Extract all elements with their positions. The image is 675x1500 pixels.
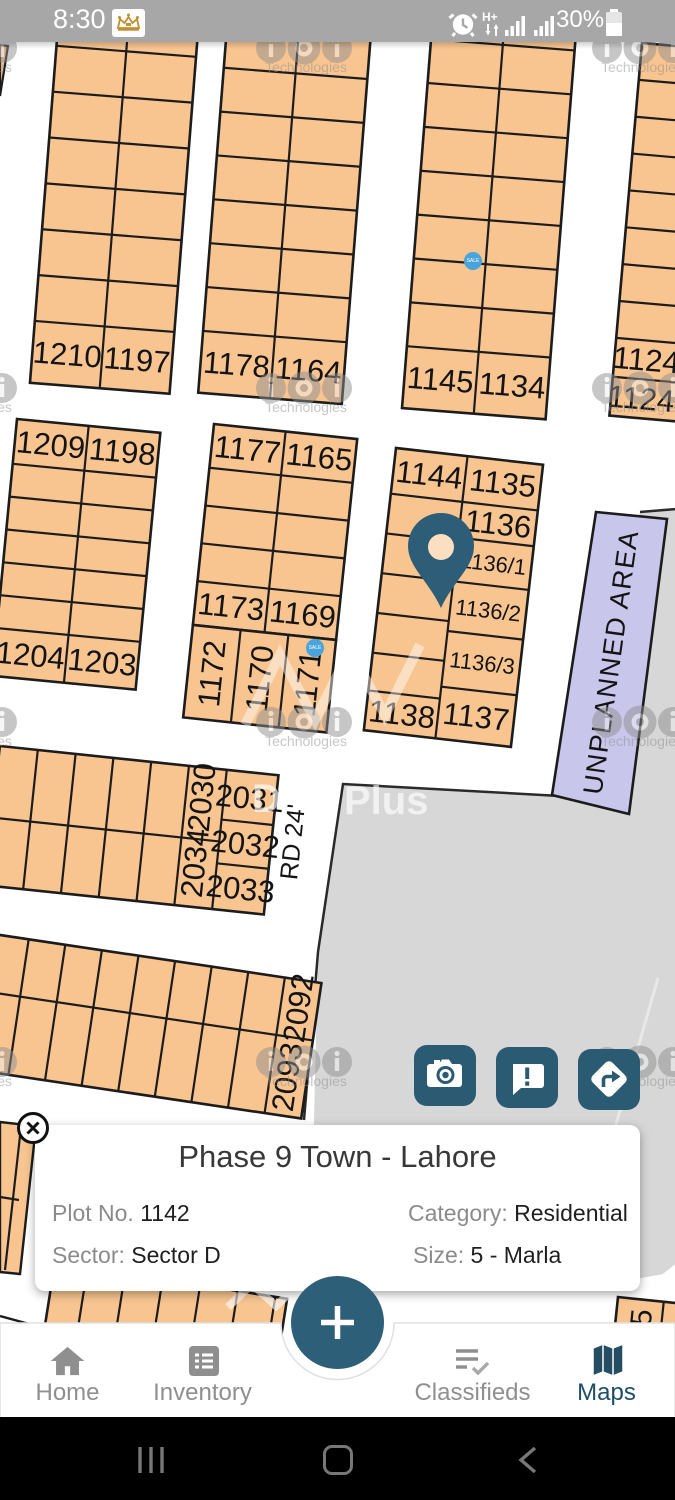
svg-text:Technologies: Technologies [265,733,347,749]
svg-text:SALE: SALE [309,645,322,651]
svg-text:1177: 1177 [213,429,283,471]
svg-text:Technologies: Technologies [601,399,675,415]
svg-text:1203: 1203 [66,642,138,683]
svg-text:1173: 1173 [196,586,266,628]
svg-text:1209: 1209 [15,424,87,465]
svg-text:1137: 1137 [441,696,511,738]
svg-text:2032: 2032 [209,823,281,865]
svg-text:1144: 1144 [394,454,464,496]
svg-text:1172: 1172 [191,639,233,709]
svg-text:Technologies: Technologies [265,59,347,75]
svg-text:1197: 1197 [102,340,171,380]
svg-text:1165: 1165 [284,436,354,478]
svg-text:1204: 1204 [0,635,66,676]
svg-text:1169: 1169 [268,593,338,635]
svg-text:Technologies: Technologies [0,1073,12,1089]
svg-text:Technologies: Technologies [265,399,347,415]
svg-text:Technologies: Technologies [265,1073,347,1089]
svg-text:1210: 1210 [32,334,104,374]
svg-text:Technologies: Technologies [601,733,675,749]
svg-text:1198: 1198 [87,431,157,472]
svg-text:1134: 1134 [478,366,547,406]
svg-text:1135: 1135 [468,462,538,504]
svg-text:2033: 2033 [204,868,276,910]
svg-text:SALE: SALE [467,258,480,264]
svg-text:Technologies: Technologies [601,59,675,75]
svg-text:Plus: Plus [344,779,428,823]
svg-text:H+: H+ [482,11,498,24]
svg-text:1136: 1136 [463,503,533,545]
svg-text:Technologies: Technologies [0,399,12,415]
svg-text:D: D [252,777,281,821]
svg-text:1145: 1145 [406,360,475,400]
svg-text:Technologies: Technologies [0,59,12,75]
svg-text:Technologies: Technologies [0,733,12,749]
